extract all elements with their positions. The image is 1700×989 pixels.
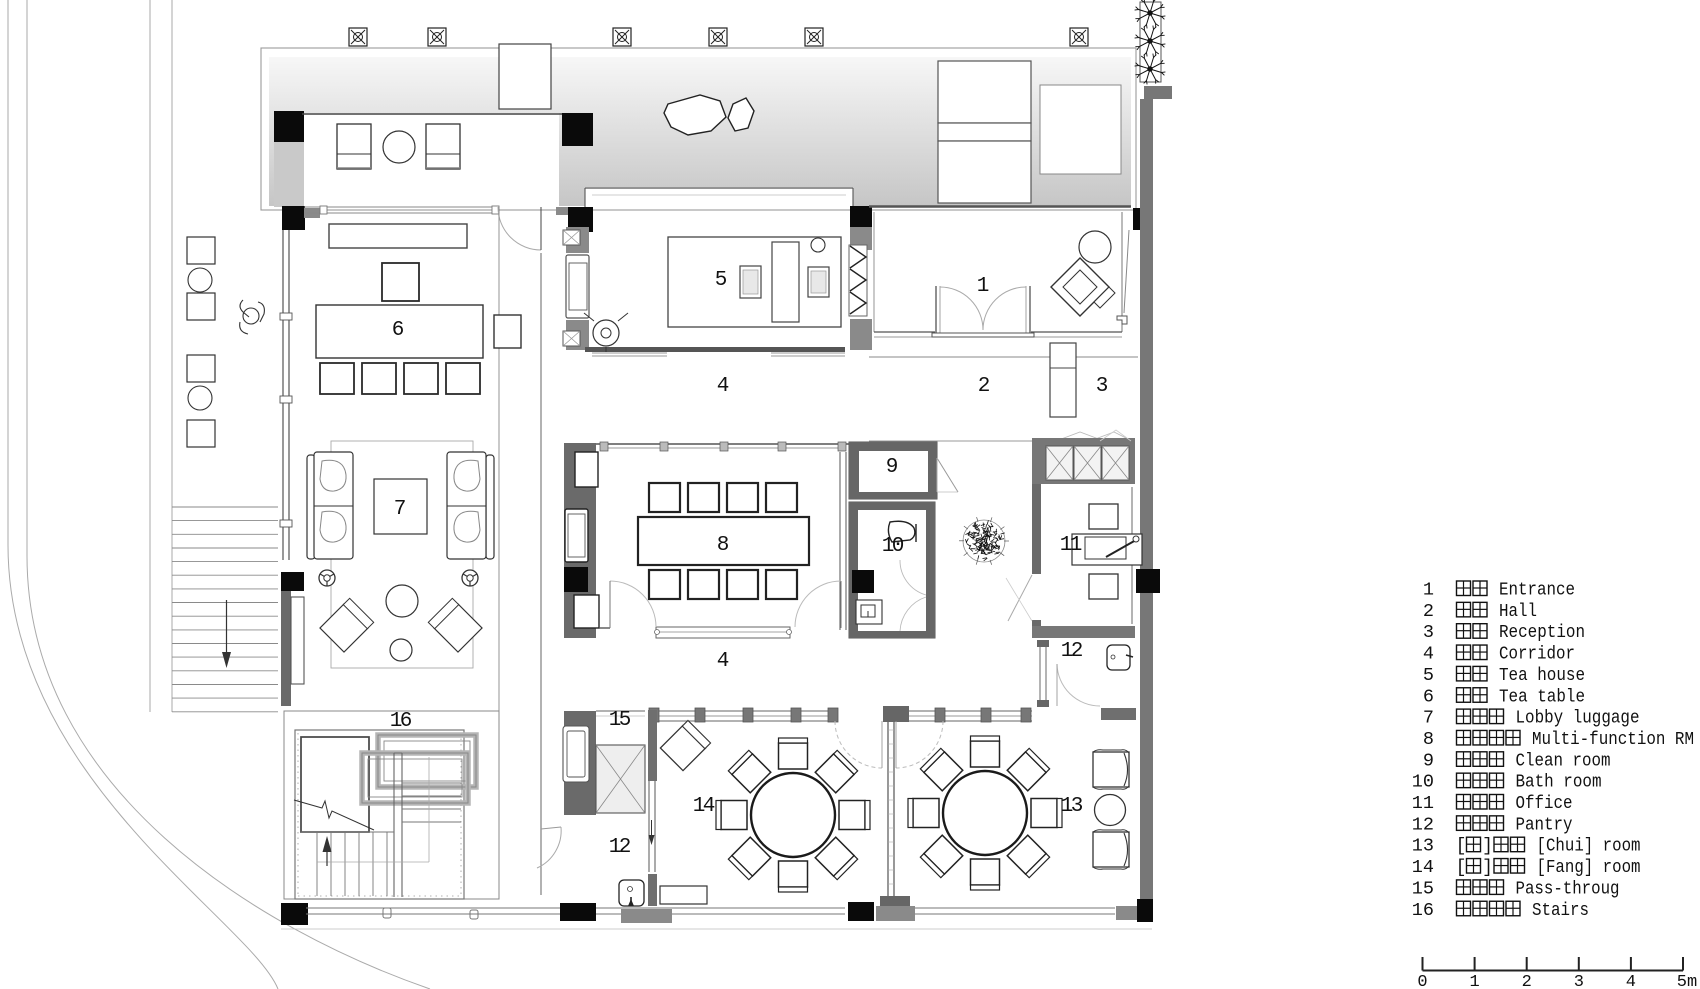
svg-text:5: 5 bbox=[715, 269, 728, 292]
svg-text:Reception: Reception bbox=[1499, 623, 1585, 643]
svg-text:Clean room: Clean room bbox=[1516, 751, 1611, 771]
svg-text:0: 0 bbox=[892, 535, 905, 558]
svg-text:12: 12 bbox=[1412, 814, 1434, 835]
svg-text:]: ] bbox=[1482, 837, 1493, 857]
svg-text:0: 0 bbox=[1417, 973, 1427, 989]
svg-text:15: 15 bbox=[1412, 878, 1434, 899]
svg-text:4: 4 bbox=[1423, 644, 1434, 665]
svg-text:Bath room: Bath room bbox=[1516, 773, 1602, 793]
svg-text:5m: 5m bbox=[1677, 973, 1697, 989]
svg-text:Office: Office bbox=[1516, 794, 1573, 814]
svg-text:3: 3 bbox=[1071, 795, 1084, 818]
svg-text:Multi-function RM: Multi-function RM bbox=[1532, 730, 1694, 750]
svg-text:8: 8 bbox=[1423, 729, 1434, 750]
svg-text:4: 4 bbox=[717, 650, 730, 673]
svg-text:2: 2 bbox=[1423, 601, 1434, 622]
svg-text:Stairs: Stairs bbox=[1532, 901, 1589, 921]
svg-text:5: 5 bbox=[1423, 665, 1434, 686]
svg-text:2: 2 bbox=[1522, 973, 1532, 989]
svg-text:Pass-throug: Pass-throug bbox=[1516, 879, 1620, 899]
svg-text:Corridor: Corridor bbox=[1499, 645, 1575, 665]
svg-text:1: 1 bbox=[977, 275, 990, 298]
svg-text:1: 1 bbox=[1070, 534, 1083, 557]
svg-text:10: 10 bbox=[1412, 772, 1434, 793]
svg-text:8: 8 bbox=[717, 534, 730, 557]
svg-text:4: 4 bbox=[703, 795, 716, 818]
svg-text:14: 14 bbox=[1412, 857, 1434, 878]
svg-text:[Chui] room: [Chui] room bbox=[1537, 837, 1641, 857]
svg-text:1: 1 bbox=[1469, 973, 1479, 989]
svg-text:Tea house: Tea house bbox=[1499, 666, 1585, 686]
svg-text:Pantry: Pantry bbox=[1516, 815, 1573, 835]
svg-text:1: 1 bbox=[1423, 580, 1434, 601]
svg-text:Entrance: Entrance bbox=[1499, 581, 1575, 601]
svg-text:[Fang] room: [Fang] room bbox=[1537, 858, 1641, 878]
svg-text:9: 9 bbox=[886, 456, 899, 479]
svg-text:7: 7 bbox=[1423, 708, 1434, 729]
svg-text:Hall: Hall bbox=[1499, 602, 1537, 622]
svg-text:5: 5 bbox=[619, 709, 632, 732]
svg-text:6: 6 bbox=[400, 710, 413, 733]
svg-text:11: 11 bbox=[1412, 793, 1434, 814]
svg-text:3: 3 bbox=[1423, 622, 1434, 643]
svg-text:Tea table: Tea table bbox=[1499, 687, 1585, 707]
svg-text:4: 4 bbox=[717, 375, 730, 398]
svg-text:]: ] bbox=[1482, 858, 1493, 878]
svg-text:[: [ bbox=[1456, 837, 1467, 857]
svg-text:9: 9 bbox=[1423, 750, 1434, 771]
svg-text:13: 13 bbox=[1412, 836, 1434, 857]
svg-text:16: 16 bbox=[1412, 900, 1434, 921]
svg-text:3: 3 bbox=[1574, 973, 1584, 989]
svg-text:Lobby luggage: Lobby luggage bbox=[1516, 709, 1640, 729]
svg-text:6: 6 bbox=[392, 319, 405, 342]
svg-text:3: 3 bbox=[1096, 375, 1109, 398]
svg-text:7: 7 bbox=[394, 498, 407, 521]
svg-text:4: 4 bbox=[1626, 973, 1636, 989]
svg-text:2: 2 bbox=[978, 375, 991, 398]
svg-text:2: 2 bbox=[619, 836, 632, 859]
svg-text:[: [ bbox=[1456, 858, 1467, 878]
svg-text:6: 6 bbox=[1423, 686, 1434, 707]
svg-text:2: 2 bbox=[1071, 640, 1084, 663]
